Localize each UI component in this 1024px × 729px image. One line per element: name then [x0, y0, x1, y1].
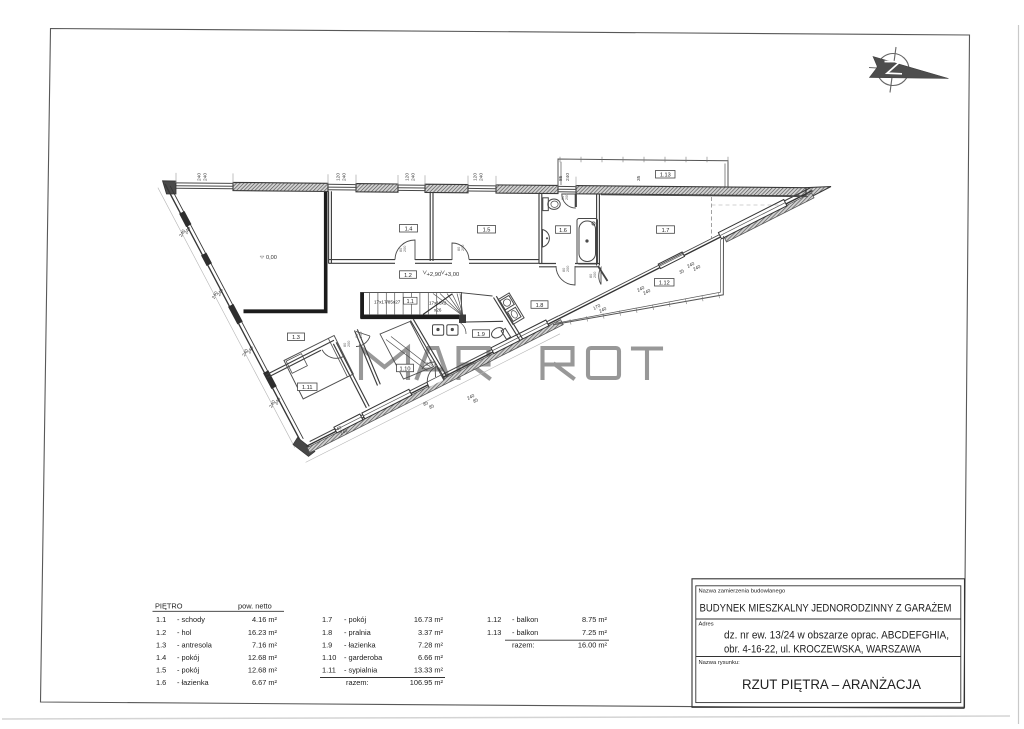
- svg-text:12.68 m²: 12.68 m²: [248, 665, 278, 674]
- svg-text:16.23 m²: 16.23 m²: [248, 628, 278, 637]
- svg-text:1.8: 1.8: [322, 628, 332, 637]
- svg-text:17x17/85x27: 17x17/85x27: [374, 300, 401, 305]
- svg-text:1.9: 1.9: [322, 640, 332, 649]
- svg-text:razem:: razem:: [512, 640, 535, 649]
- svg-text:1.12: 1.12: [487, 615, 501, 624]
- svg-text:1.13: 1.13: [660, 173, 671, 179]
- svg-text:240: 240: [411, 173, 417, 181]
- svg-text:1.11: 1.11: [302, 385, 312, 391]
- svg-text:1.7: 1.7: [662, 228, 670, 234]
- svg-text:obr. 4-16-22, ul. KROCZEWSKA,: obr. 4-16-22, ul. KROCZEWSKA, WARSZAWA: [724, 644, 922, 656]
- svg-text:1.2: 1.2: [404, 273, 412, 279]
- svg-text:13.33 m²: 13.33 m²: [414, 665, 444, 674]
- svg-text:1.3: 1.3: [292, 335, 300, 341]
- svg-text:Adres: Adres: [699, 622, 714, 628]
- svg-text:x26: x26: [434, 308, 442, 313]
- svg-text:3.37 m²: 3.37 m²: [418, 628, 444, 637]
- svg-text:12.68 m²: 12.68 m²: [248, 653, 278, 662]
- svg-text:- antresola: - antresola: [177, 640, 213, 649]
- svg-text:35: 35: [636, 175, 642, 181]
- svg-text:pow. netto: pow. netto: [238, 602, 272, 611]
- svg-text:- balkon: - balkon: [512, 628, 538, 637]
- svg-text:1.4: 1.4: [156, 653, 166, 662]
- svg-text:16.73 m²: 16.73 m²: [414, 615, 444, 624]
- svg-text:240: 240: [203, 173, 209, 181]
- svg-text:BUDYNEK MIESZKALNY JEDNORODZIN: BUDYNEK MIESZKALNY JEDNORODZINNY Z GARAŻ…: [700, 602, 952, 615]
- svg-text:200: 200: [429, 360, 433, 366]
- svg-text:7.28 m²: 7.28 m²: [418, 640, 444, 649]
- svg-text:200: 200: [593, 272, 597, 278]
- svg-text:1.13: 1.13: [487, 628, 501, 637]
- svg-text:- pokój: - pokój: [177, 653, 200, 662]
- svg-text:1.10: 1.10: [400, 366, 411, 372]
- svg-text:240: 240: [479, 173, 485, 181]
- svg-text:1.7: 1.7: [322, 615, 332, 624]
- svg-text:240: 240: [342, 173, 348, 181]
- svg-text:- łazienka: - łazienka: [344, 640, 377, 649]
- svg-text:200: 200: [566, 266, 570, 272]
- svg-text:- sypialnia: - sypialnia: [344, 665, 378, 674]
- svg-text:- garderoba: - garderoba: [344, 653, 383, 662]
- svg-text:1.1: 1.1: [156, 615, 166, 624]
- svg-text:1.5: 1.5: [483, 228, 491, 234]
- svg-text:- hol: - hol: [177, 628, 192, 637]
- svg-text:razem:: razem:: [346, 678, 369, 687]
- svg-text:7.25 m²: 7.25 m²: [582, 628, 608, 637]
- svg-text:- balkon: - balkon: [512, 615, 538, 624]
- svg-text:1.6: 1.6: [559, 228, 567, 234]
- svg-text:- pokój: - pokój: [177, 665, 200, 674]
- svg-text:1.10: 1.10: [322, 653, 336, 662]
- svg-text:200: 200: [461, 245, 465, 251]
- svg-text:16.00 m²: 16.00 m²: [578, 640, 608, 649]
- svg-text:PIĘTRO: PIĘTRO: [155, 602, 183, 611]
- svg-text:120: 120: [405, 173, 411, 181]
- svg-text:1.11: 1.11: [322, 665, 336, 674]
- svg-text:240: 240: [197, 173, 203, 181]
- svg-text:240: 240: [565, 173, 571, 181]
- svg-text:200: 200: [359, 332, 363, 338]
- svg-text:106.95 m²: 106.95 m²: [410, 678, 444, 687]
- svg-text:6.66 m²: 6.66 m²: [418, 653, 444, 662]
- svg-text:200: 200: [347, 341, 351, 347]
- svg-text:200: 200: [565, 194, 569, 200]
- svg-text:dz. nr ew. 13/24 w obszarze op: dz. nr ew. 13/24 w obszarze oprac. ABCDE…: [724, 630, 949, 642]
- svg-text:1.9: 1.9: [477, 332, 485, 338]
- svg-text:6.67 m²: 6.67 m²: [252, 678, 278, 687]
- svg-text:1.3: 1.3: [156, 640, 166, 649]
- svg-text:RZUT PIĘTRA – ARANŻACJA: RZUT PIĘTRA – ARANŻACJA: [742, 677, 921, 692]
- svg-text:- łazienka: - łazienka: [177, 678, 210, 687]
- svg-text:7.16 m²: 7.16 m²: [252, 640, 278, 649]
- svg-text:8.75 m²: 8.75 m²: [582, 615, 608, 624]
- svg-text:1.8: 1.8: [536, 303, 544, 309]
- svg-text:Nazwa rysunku:: Nazwa rysunku:: [699, 660, 741, 666]
- svg-text:1.2: 1.2: [156, 628, 166, 637]
- svg-text:200: 200: [403, 246, 407, 252]
- svg-text:- schody: - schody: [177, 615, 205, 624]
- svg-text:85: 85: [558, 175, 564, 181]
- svg-text:1.6: 1.6: [156, 678, 166, 687]
- svg-text:- pralnia: - pralnia: [344, 628, 372, 637]
- svg-text:0,00: 0,00: [266, 255, 277, 261]
- svg-text:+3,00: +3,00: [445, 272, 460, 278]
- svg-text:17x18x2: 17x18x2: [429, 301, 447, 306]
- svg-text:120: 120: [336, 173, 342, 181]
- svg-text:- pokój: - pokój: [344, 615, 367, 624]
- svg-text:1.5: 1.5: [156, 665, 166, 674]
- svg-text:Nazwa zamierzenia budowlanego: Nazwa zamierzenia budowlanego: [699, 589, 786, 595]
- svg-text:1.1: 1.1: [407, 299, 414, 305]
- svg-text:120: 120: [473, 173, 479, 181]
- svg-text:4.16 m²: 4.16 m²: [252, 615, 278, 624]
- svg-text:+2,90: +2,90: [427, 272, 442, 278]
- svg-text:1.4: 1.4: [405, 227, 413, 233]
- svg-text:1.12: 1.12: [659, 281, 670, 287]
